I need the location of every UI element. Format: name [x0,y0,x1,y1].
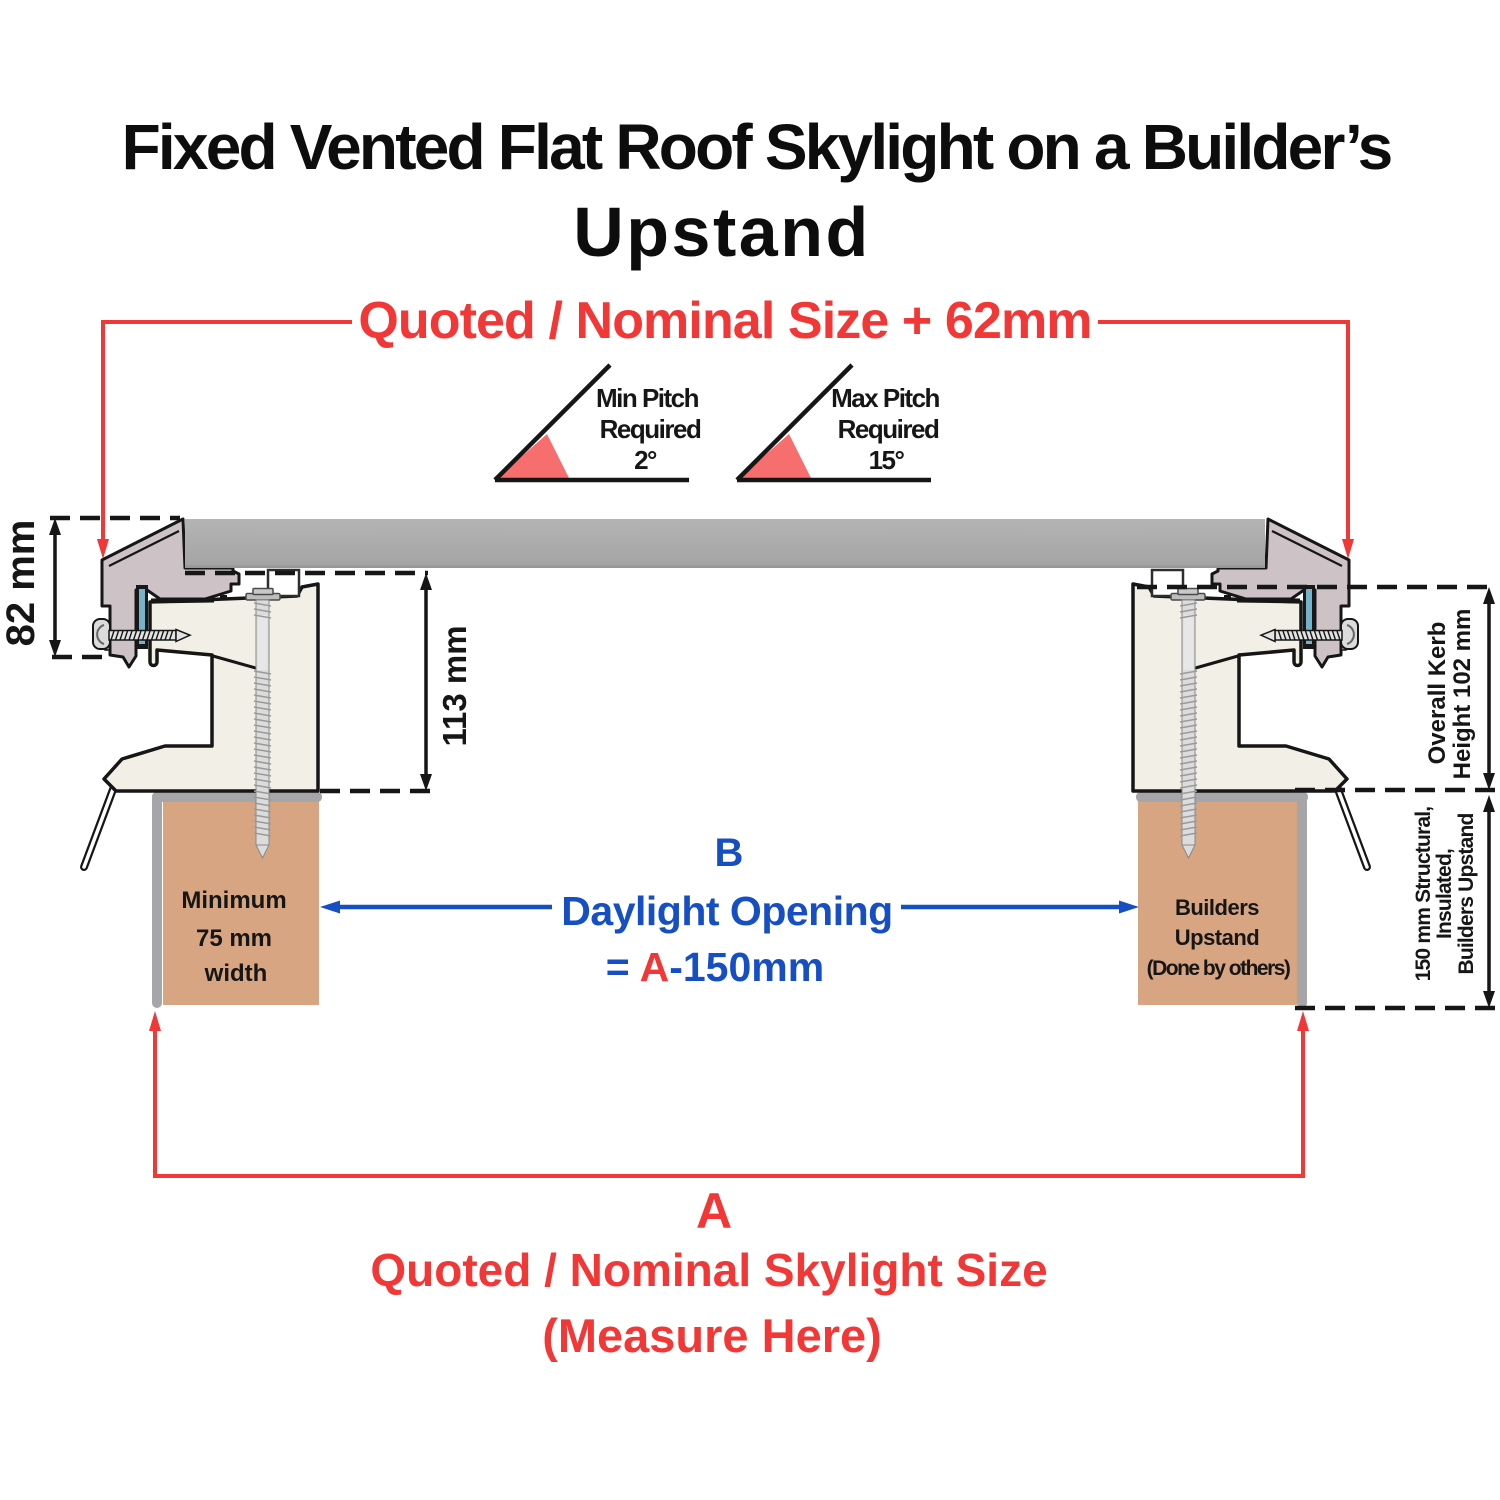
svg-text:Minimum: Minimum [181,887,286,914]
svg-text:Insulated,: Insulated, [1433,849,1456,939]
svg-text:Min Pitch: Min Pitch [596,383,699,413]
svg-text:Overall Kerb: Overall Kerb [1424,622,1451,765]
svg-text:width: width [204,960,268,987]
svg-text:15°: 15° [869,445,905,475]
svg-text:82 mm: 82 mm [0,520,43,647]
svg-text:Builders Upstand: Builders Upstand [1455,813,1478,974]
svg-text:Height 102 mm: Height 102 mm [1449,609,1476,780]
svg-text:Required: Required [838,414,939,444]
svg-text:A: A [696,1183,732,1239]
svg-text:2°: 2° [634,445,657,475]
svg-text:75 mm: 75 mm [196,925,272,952]
svg-text:Quoted / Nominal Size + 62mm: Quoted / Nominal Size + 62mm [358,292,1091,350]
svg-text:B: B [715,831,744,875]
svg-text:Fixed Vented Flat Roof Skyligh: Fixed Vented Flat Roof Skylight on a Bui… [122,111,1391,183]
svg-text:(Measure Here): (Measure Here) [542,1309,882,1362]
svg-text:Upstand: Upstand [1175,925,1260,950]
svg-text:Upstand: Upstand [573,193,871,271]
svg-text:150 mm Structural,: 150 mm Structural, [1412,807,1435,982]
svg-text:Quoted / Nominal Skylight Size: Quoted / Nominal Skylight Size [370,1244,1047,1296]
svg-text:Builders: Builders [1175,895,1259,920]
svg-text:Required: Required [600,414,701,444]
svg-text:Daylight Opening: Daylight Opening [561,888,892,934]
svg-text:113 mm: 113 mm [436,625,473,746]
svg-text:Max Pitch: Max Pitch [831,383,939,413]
svg-text:= A-150mm: = A-150mm [606,944,824,990]
svg-text:(Done by others): (Done by others) [1147,957,1290,980]
